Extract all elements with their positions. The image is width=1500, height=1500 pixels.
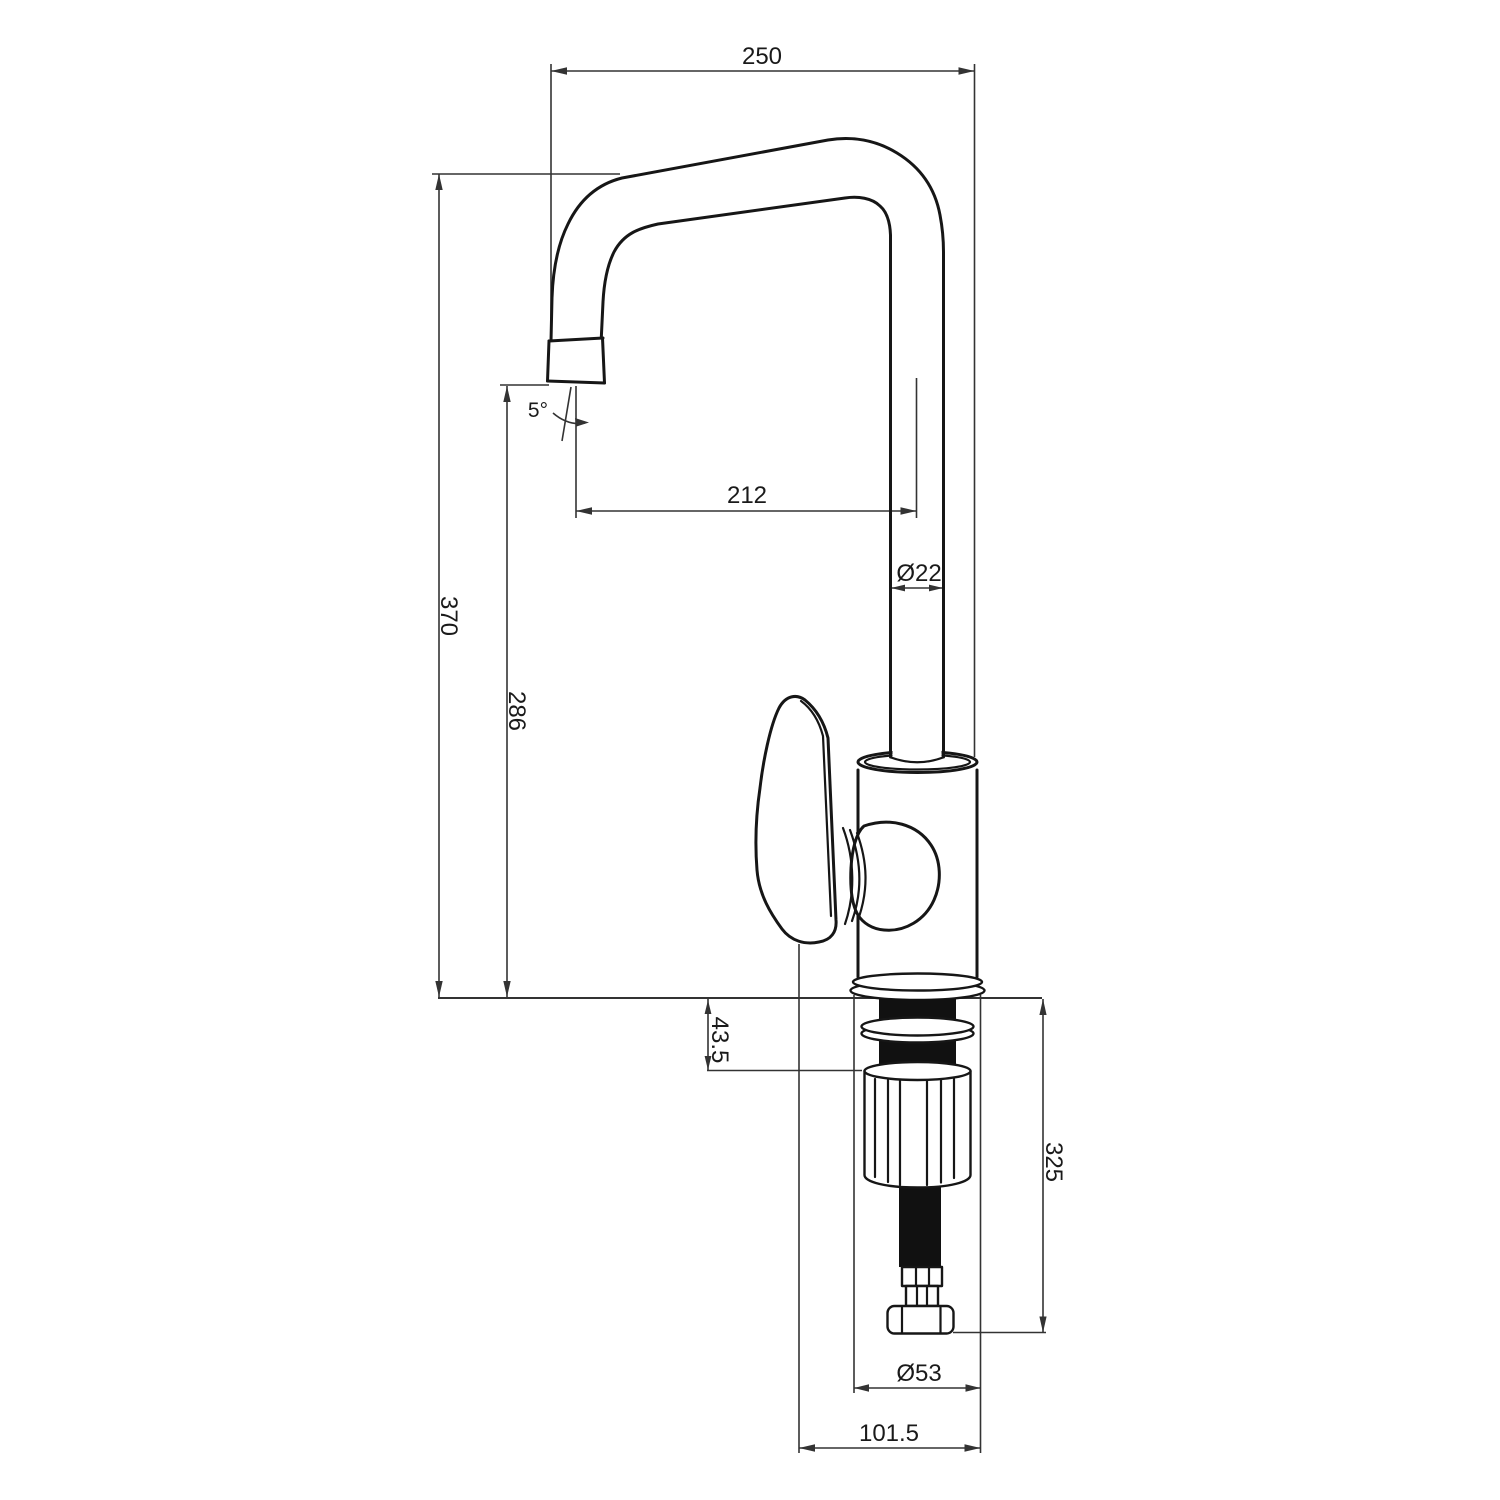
dim-spout-outlet-height: 286	[500, 385, 549, 997]
dim-deck-thickness: 43.5	[705, 999, 862, 1071]
dim-label-overall-height: 370	[435, 596, 462, 636]
shank-washer	[862, 1018, 974, 1043]
dim-label-front-clearance: 101.5	[859, 1420, 919, 1447]
dim-label-spout-reach: 212	[727, 482, 767, 509]
valve-housing	[843, 822, 939, 930]
dim-label-spout-angle: 5°	[528, 399, 548, 422]
dim-label-overall-width: 250	[742, 43, 782, 70]
dim-pipe-diameter: Ø22	[891, 560, 943, 591]
dim-label-pipe-diameter: Ø22	[896, 560, 941, 587]
dim-spout-reach: 212	[576, 378, 917, 518]
dim-overall-width: 250	[551, 43, 975, 757]
hose-connector	[888, 1267, 954, 1334]
connector-hex-nut	[888, 1306, 954, 1334]
spout-aerator-tip	[548, 338, 605, 383]
dim-label-deck-thickness: 43.5	[706, 1017, 733, 1064]
dim-spout-angle: 5°	[528, 387, 589, 441]
mounting-nut	[865, 1062, 971, 1188]
dim-label-below-deck-length: 325	[1040, 1142, 1067, 1182]
dim-label-base-diameter: Ø53	[896, 1360, 941, 1387]
spout-pipe	[551, 139, 944, 763]
base-flange	[851, 974, 985, 1001]
dim-label-spout-outlet-height: 286	[503, 691, 530, 731]
technical-drawing-page: 250 370 286 212 Ø22 5°	[0, 0, 1500, 1500]
lever-handle	[756, 696, 836, 942]
faucet-dimension-diagram: 250 370 286 212 Ø22 5°	[0, 0, 1500, 1500]
dim-overall-height: 370	[432, 174, 620, 997]
